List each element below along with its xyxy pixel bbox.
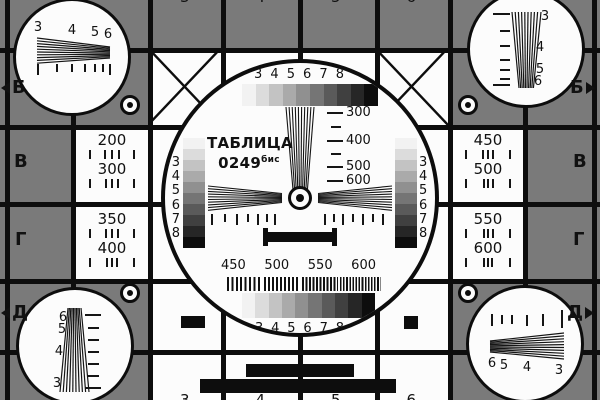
right-strip-numbers: 345678 xyxy=(419,156,432,240)
wedge-number: 6 xyxy=(531,74,545,90)
grid-vline xyxy=(5,0,10,400)
row-letter: Б xyxy=(570,79,584,97)
wedge-top-left xyxy=(16,1,128,113)
wedge-number: 3 xyxy=(552,363,566,379)
resolution-cell-200-300: 200 300 xyxy=(74,125,150,202)
resolution-number: 600 xyxy=(474,240,503,256)
row-letter-g-right: Г xyxy=(573,231,584,249)
card-title-line1: ТАБЛИЦА xyxy=(207,135,291,152)
resolution-ticks xyxy=(89,179,135,188)
wedge-number: 4 xyxy=(533,40,547,56)
wedge-number: 4 xyxy=(65,23,79,39)
freq-label-600: 600 xyxy=(346,173,371,189)
resolution-ticks xyxy=(89,258,135,267)
black-patch-square xyxy=(404,316,418,329)
resolution-number: 350 xyxy=(98,211,127,227)
resolution-ticks xyxy=(465,229,511,238)
test-card-tit-0249: 3 4 5 6 3 4 5 6 xyxy=(0,0,600,400)
wedge-number: 3 xyxy=(31,20,45,36)
black-bar-cap xyxy=(263,228,268,246)
resolution-ticks xyxy=(89,150,135,159)
wedge-number: 5 xyxy=(55,322,69,338)
resolution-cell-550-600: 550 600 xyxy=(451,202,525,279)
bullseye-target xyxy=(458,283,478,303)
resolution-number: 550 xyxy=(474,211,503,227)
row-marker-d-right: Д xyxy=(567,304,594,322)
row-marker-b-left: Б xyxy=(1,79,26,97)
freq-label-300: 300 xyxy=(346,105,371,121)
resolution-cell-350-400: 350 400 xyxy=(74,202,150,279)
resolution-ticks xyxy=(465,150,511,159)
corner-circle-bottom-left: 6 5 4 3 xyxy=(16,287,134,400)
triangle-right-icon xyxy=(586,82,595,94)
freq-label-400: 400 xyxy=(346,133,371,149)
grayscale-bar-top xyxy=(242,84,378,106)
corner-circle-top-right: 3 4 5 6 xyxy=(467,0,585,108)
grayscale-bar-bottom xyxy=(242,293,375,318)
title-suffix: бис xyxy=(261,155,280,165)
corner-circle-top-left: 3 4 5 6 xyxy=(13,0,131,116)
bullseye-target xyxy=(120,95,140,115)
center-bullseye-target xyxy=(288,186,312,210)
left-strip-numbers: 345678 xyxy=(167,156,180,240)
triangle-left-icon xyxy=(1,82,10,94)
grayscale-strip-right xyxy=(395,138,417,248)
resolution-cell-450-500: 450 500 xyxy=(451,125,525,202)
wedge-bottom-left xyxy=(19,290,131,400)
wedge-number: 5 xyxy=(88,25,102,41)
resolution-ticks xyxy=(89,229,135,238)
row-letter-v-right: В xyxy=(573,153,587,171)
wedge-bottom-right xyxy=(469,288,581,400)
row-letter: Д xyxy=(567,304,583,322)
grayscale-strip-left xyxy=(183,138,205,248)
resolution-ticks xyxy=(465,258,511,267)
row-letter-g-left: Г xyxy=(15,231,26,249)
resolution-number: 450 xyxy=(474,132,503,148)
resolution-number: 200 xyxy=(98,132,127,148)
wedge-number: 4 xyxy=(520,360,534,376)
wedge-top-right xyxy=(470,0,582,105)
bottom-bar-short xyxy=(246,364,354,377)
multiburst-band xyxy=(227,277,383,291)
top-edge-column-digits: 3456 xyxy=(147,0,449,5)
burst-frequency-labels: 450500550600 xyxy=(221,259,376,272)
resolution-ticks xyxy=(465,179,511,188)
bullseye-target xyxy=(458,95,478,115)
resolution-number: 500 xyxy=(474,161,503,177)
wedge-number: 4 xyxy=(52,344,66,360)
grid-vline xyxy=(592,0,597,400)
resolution-number: 400 xyxy=(98,240,127,256)
row-letter: Б xyxy=(12,79,26,97)
top-grayscale-numbers: 345678 xyxy=(254,68,344,81)
triangle-left-icon xyxy=(1,307,10,319)
bullseye-target xyxy=(120,283,140,303)
row-letter-v-left: В xyxy=(14,153,28,171)
black-patch-rect xyxy=(181,316,205,328)
row-marker-b-right: Б xyxy=(570,79,595,97)
black-bar-cap xyxy=(332,228,337,246)
wedge-number: 5 xyxy=(497,358,511,374)
triangle-right-icon xyxy=(585,307,594,319)
wedge-number: 3 xyxy=(538,9,552,25)
card-title-line2: 0249бис xyxy=(207,152,291,172)
wedge-number: 3 xyxy=(50,376,64,392)
bottom-bar-long xyxy=(200,379,396,393)
row-marker-d-left: Д xyxy=(1,304,28,322)
bottom-edge-column-digits: 3456 xyxy=(147,392,449,400)
wedge-number: 6 xyxy=(101,27,115,43)
row-letter: Д xyxy=(12,304,28,322)
bottom-grayscale-numbers: 345678 xyxy=(255,322,344,335)
resolution-number: 300 xyxy=(98,161,127,177)
black-reference-bar xyxy=(263,232,337,242)
